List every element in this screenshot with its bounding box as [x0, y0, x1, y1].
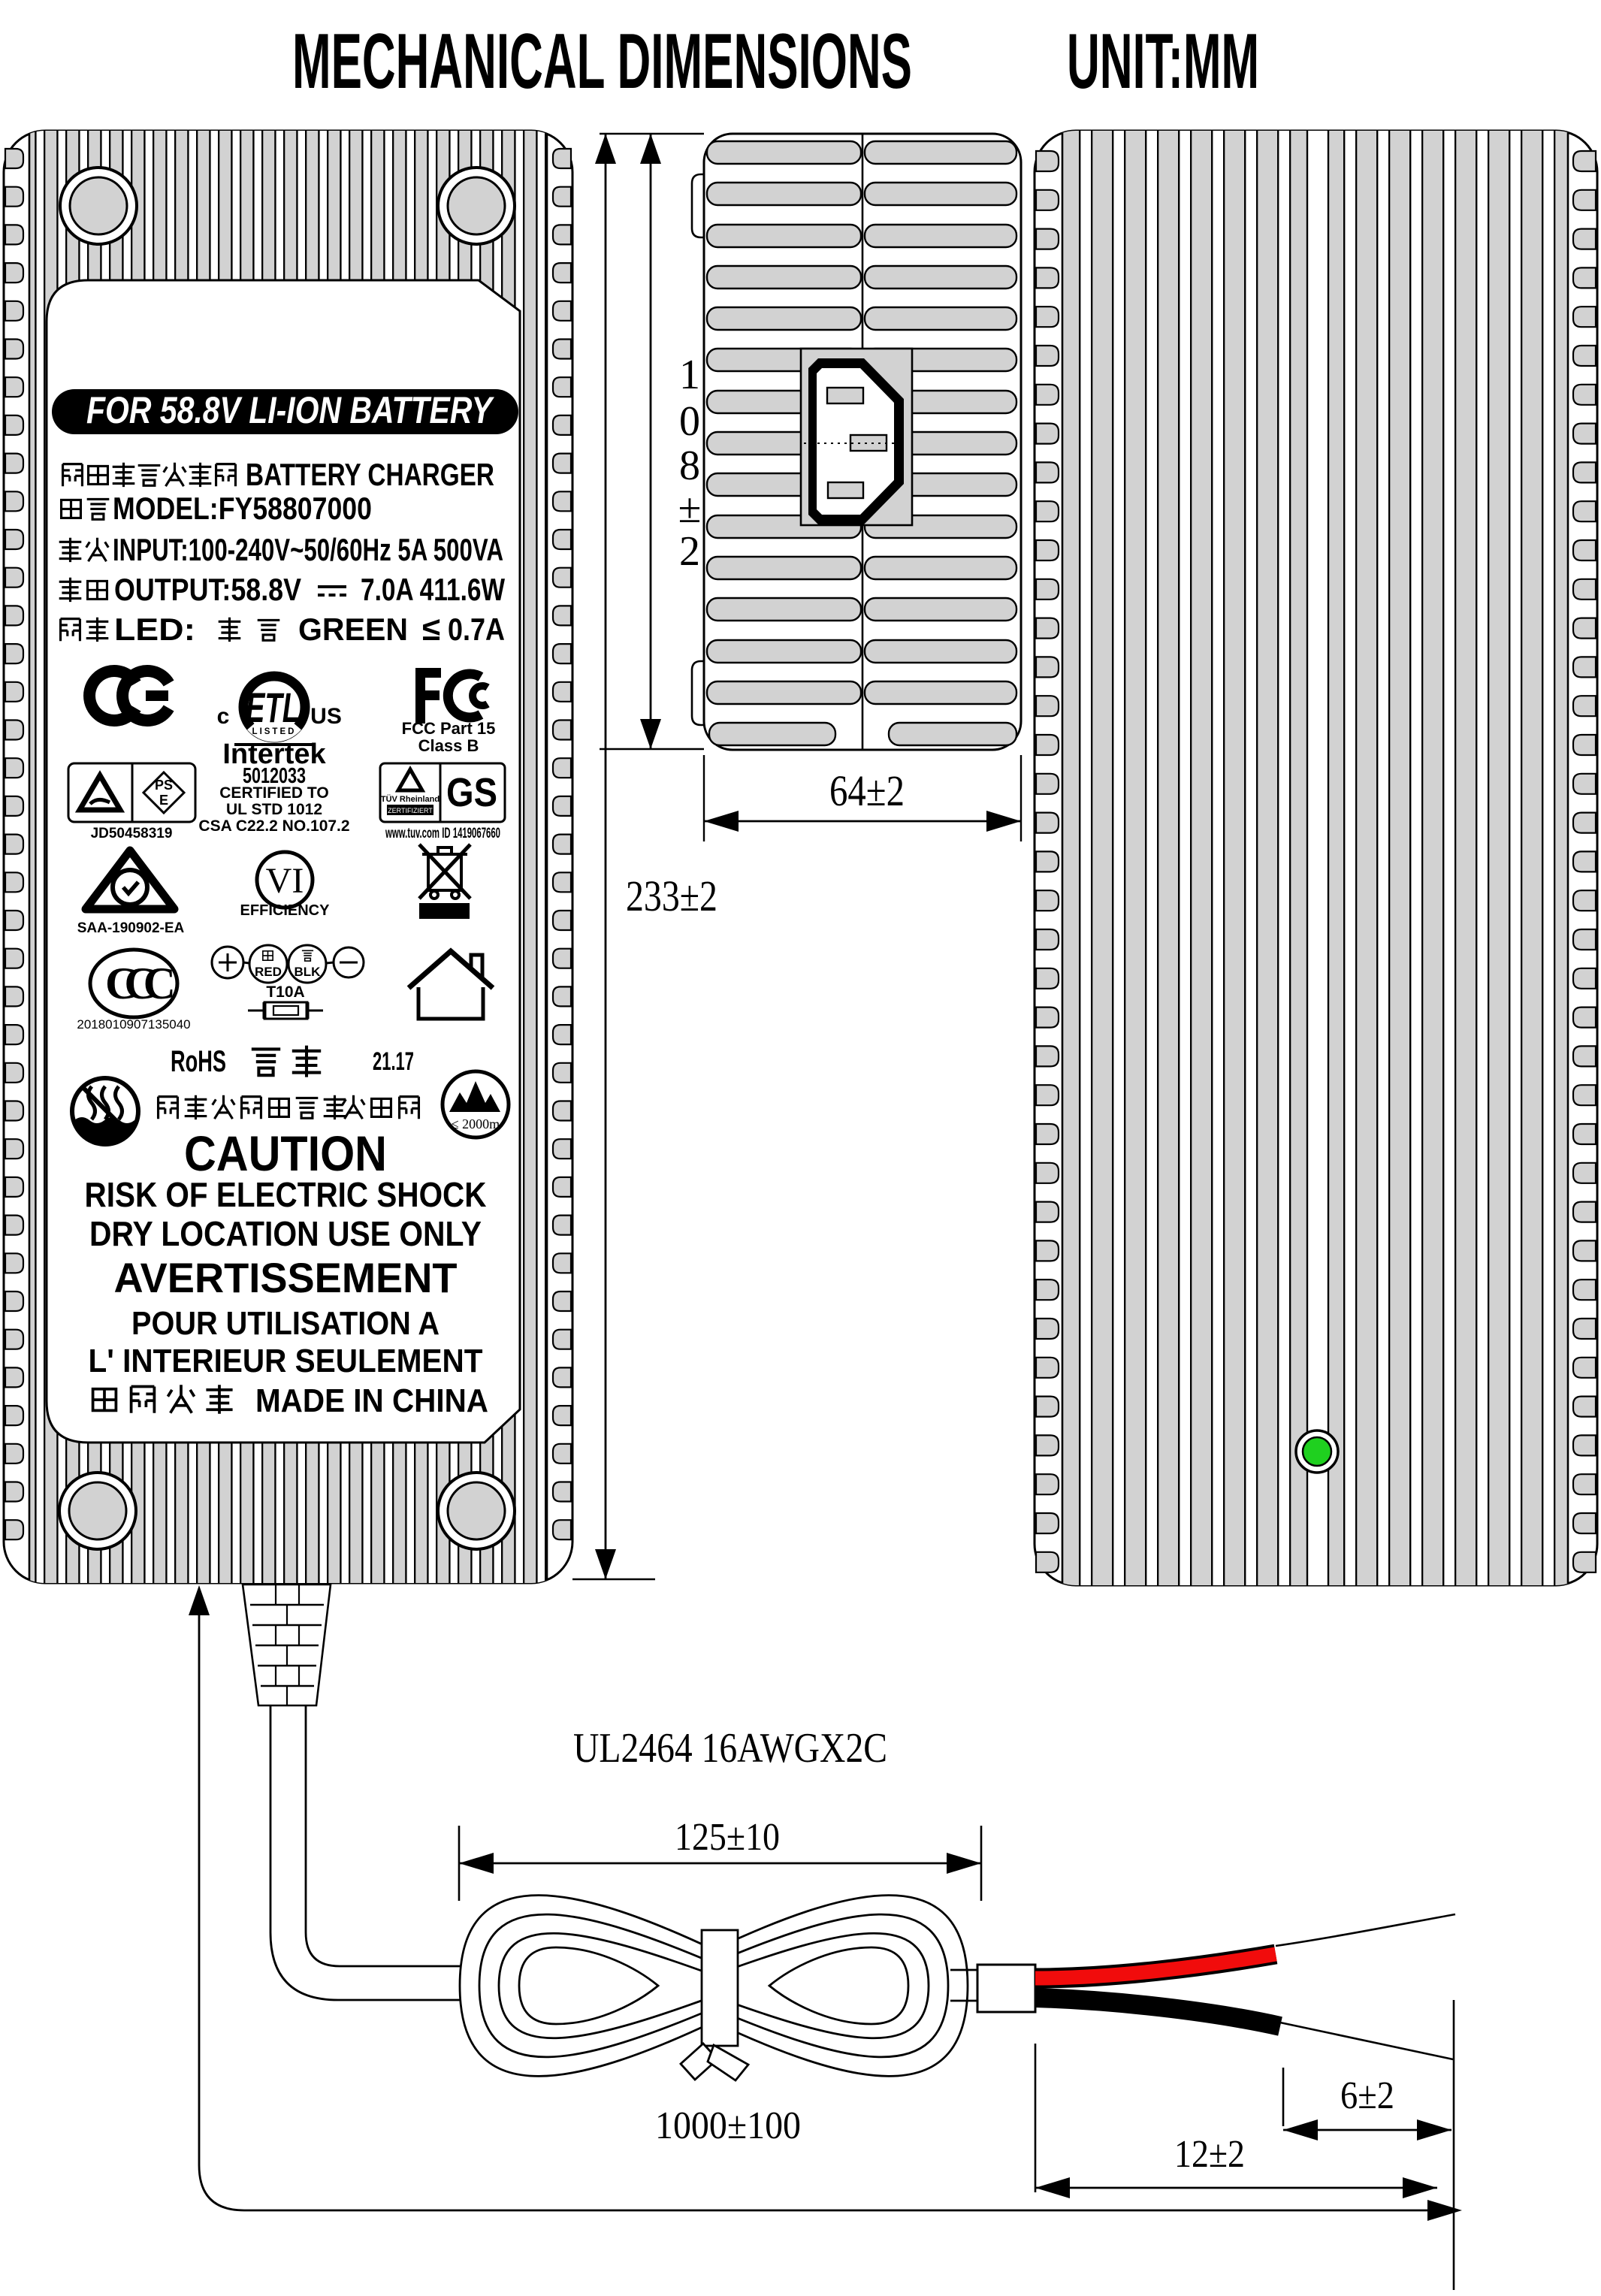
svg-text:BLK: BLK: [295, 965, 322, 979]
svg-text:L' INTERIEUR SEULEMENT: L' INTERIEUR SEULEMENT: [89, 1343, 483, 1379]
svg-text:c: c: [217, 704, 230, 729]
svg-text:PS: PS: [155, 778, 173, 793]
svg-text:1000±100: 1000±100: [655, 2104, 801, 2147]
svg-text:7.0A 411.6W: 7.0A 411.6W: [361, 572, 505, 607]
svg-text:≤ 2000m: ≤ 2000m: [452, 1116, 500, 1131]
svg-text:INPUT:100-240V~50/60Hz 5A 500V: INPUT:100-240V~50/60Hz 5A 500VA: [113, 532, 503, 567]
svg-text:MODEL:FY58807000: MODEL:FY58807000: [113, 491, 372, 526]
svg-text:T10A: T10A: [266, 983, 304, 1001]
svg-text:AVERTISSEMENT: AVERTISSEMENT: [114, 1254, 458, 1301]
svg-text:ETL: ETL: [246, 684, 300, 731]
svg-text:2018010907135040: 2018010907135040: [77, 1017, 190, 1032]
svg-text:FOR 58.8V LI-ION BATTERY: FOR 58.8V LI-ION BATTERY: [86, 389, 495, 431]
svg-text:CERTIFIED TO: CERTIFIED TO: [219, 784, 328, 802]
svg-text:RoHS: RoHS: [171, 1045, 226, 1078]
svg-text:8: 8: [679, 443, 700, 489]
svg-text:JD50458319: JD50458319: [91, 826, 173, 841]
svg-text:POUR UTILISATION A: POUR UTILISATION A: [131, 1305, 440, 1342]
svg-text:BATTERY CHARGER: BATTERY CHARGER: [246, 457, 494, 492]
svg-text:DRY LOCATION USE ONLY: DRY LOCATION USE ONLY: [89, 1214, 482, 1253]
svg-text:CAUTION: CAUTION: [184, 1125, 387, 1181]
svg-text:RED: RED: [255, 965, 282, 979]
svg-text:UL STD 1012: UL STD 1012: [226, 801, 322, 818]
svg-text:ZERTIFIZIERT: ZERTIFIZIERT: [388, 807, 433, 814]
svg-text:0: 0: [679, 398, 700, 445]
svg-text:233±2: 233±2: [626, 872, 717, 920]
svg-text:MECHANICAL DIMENSIONS: MECHANICAL DIMENSIONS: [292, 18, 912, 105]
svg-text:FCC Part 15: FCC Part 15: [402, 719, 496, 738]
svg-text:E: E: [159, 793, 168, 808]
svg-text:VI: VI: [266, 861, 304, 901]
svg-text:TÜV Rheinland: TÜV Rheinland: [381, 794, 440, 804]
svg-text:GREEN: GREEN: [298, 612, 408, 647]
svg-text:LED:: LED:: [114, 612, 195, 647]
svg-text:6±2: 6±2: [1340, 2074, 1394, 2117]
svg-text:≤: ≤: [422, 611, 440, 648]
svg-text:OUTPUT:58.8V: OUTPUT:58.8V: [114, 572, 301, 607]
svg-text:21.17: 21.17: [373, 1047, 414, 1076]
svg-text:64±2: 64±2: [829, 766, 905, 815]
svg-text:2: 2: [679, 528, 700, 575]
svg-text:±: ±: [678, 485, 702, 532]
svg-text:CSA C22.2 NO.107.2: CSA C22.2 NO.107.2: [198, 817, 349, 835]
svg-text:US: US: [310, 704, 342, 729]
svg-text:RISK OF ELECTRIC SHOCK: RISK OF ELECTRIC SHOCK: [85, 1175, 487, 1214]
svg-text:UNIT:MM: UNIT:MM: [1067, 18, 1259, 105]
svg-text:1: 1: [679, 352, 700, 398]
svg-text:www.tuv.com ID 1419067660: www.tuv.com ID 1419067660: [385, 826, 500, 841]
svg-text:UL2464 16AWGX2C: UL2464 16AWGX2C: [573, 1725, 887, 1772]
svg-text:LISTED: LISTED: [252, 727, 297, 736]
svg-text:MADE IN CHINA: MADE IN CHINA: [255, 1382, 488, 1419]
svg-text:EFFICIENCY: EFFICIENCY: [240, 902, 331, 919]
svg-text:12±2: 12±2: [1174, 2133, 1245, 2176]
svg-text:0.7A: 0.7A: [448, 612, 505, 647]
svg-text:Class B: Class B: [418, 736, 479, 755]
svg-text:125±10: 125±10: [675, 1816, 780, 1859]
svg-text:GS: GS: [446, 770, 497, 815]
svg-text:SAA-190902-EA: SAA-190902-EA: [77, 920, 185, 936]
